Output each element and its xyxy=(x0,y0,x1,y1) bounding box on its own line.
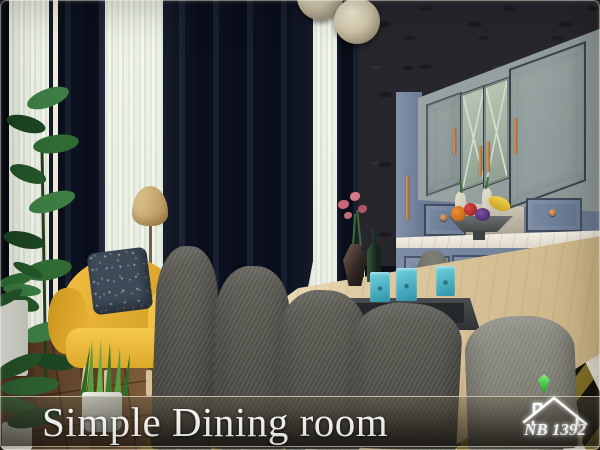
drawer-knob xyxy=(440,214,447,221)
grapes xyxy=(475,208,490,221)
cabinet-door xyxy=(509,41,586,209)
glass-cabinet-door xyxy=(461,85,486,190)
fern-fronds xyxy=(0,259,45,311)
scene-image: Simple Dining room NB 1392 xyxy=(0,0,600,450)
snake-plant-leaves xyxy=(80,338,130,396)
cabinet-handle xyxy=(479,145,482,176)
glass-cup xyxy=(370,272,390,302)
drawer-knob xyxy=(549,209,556,216)
glass-cup xyxy=(436,266,455,296)
fruit-bowl-foot xyxy=(473,231,485,240)
cabinet-door xyxy=(426,91,462,196)
image-title: Simple Dining room xyxy=(42,398,388,446)
fern-plant xyxy=(0,262,64,312)
glass-cup xyxy=(396,268,417,301)
throw-pillow xyxy=(86,247,153,316)
cabinet-handle xyxy=(453,127,456,154)
cabinet-handle xyxy=(406,176,409,220)
cabinet-handle xyxy=(487,141,490,172)
armchair-leg xyxy=(146,370,152,396)
cabinet-handle xyxy=(514,117,517,154)
snake-plant xyxy=(76,338,132,396)
watermark-text: NB 1392 xyxy=(512,420,598,440)
pendant-lamp xyxy=(334,0,380,44)
